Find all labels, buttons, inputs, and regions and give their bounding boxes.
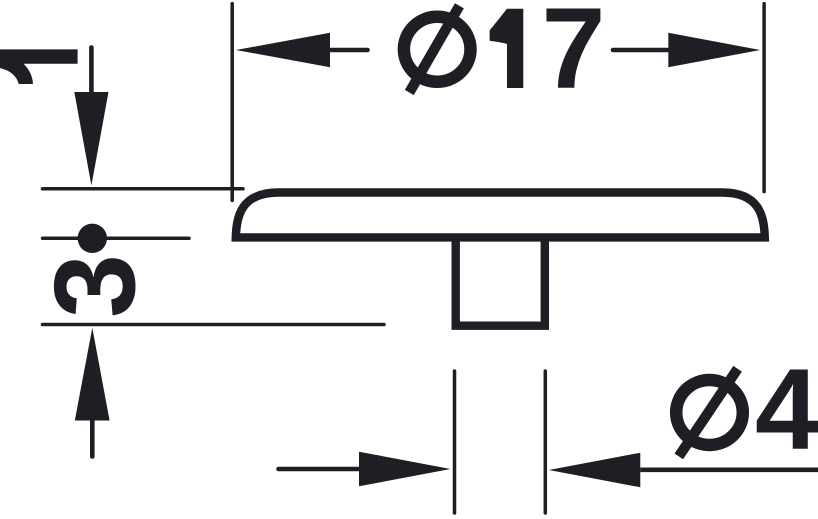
svg-text:7: 7 <box>542 0 606 113</box>
svg-text:3: 3 <box>31 254 159 318</box>
svg-text:4: 4 <box>755 346 818 474</box>
